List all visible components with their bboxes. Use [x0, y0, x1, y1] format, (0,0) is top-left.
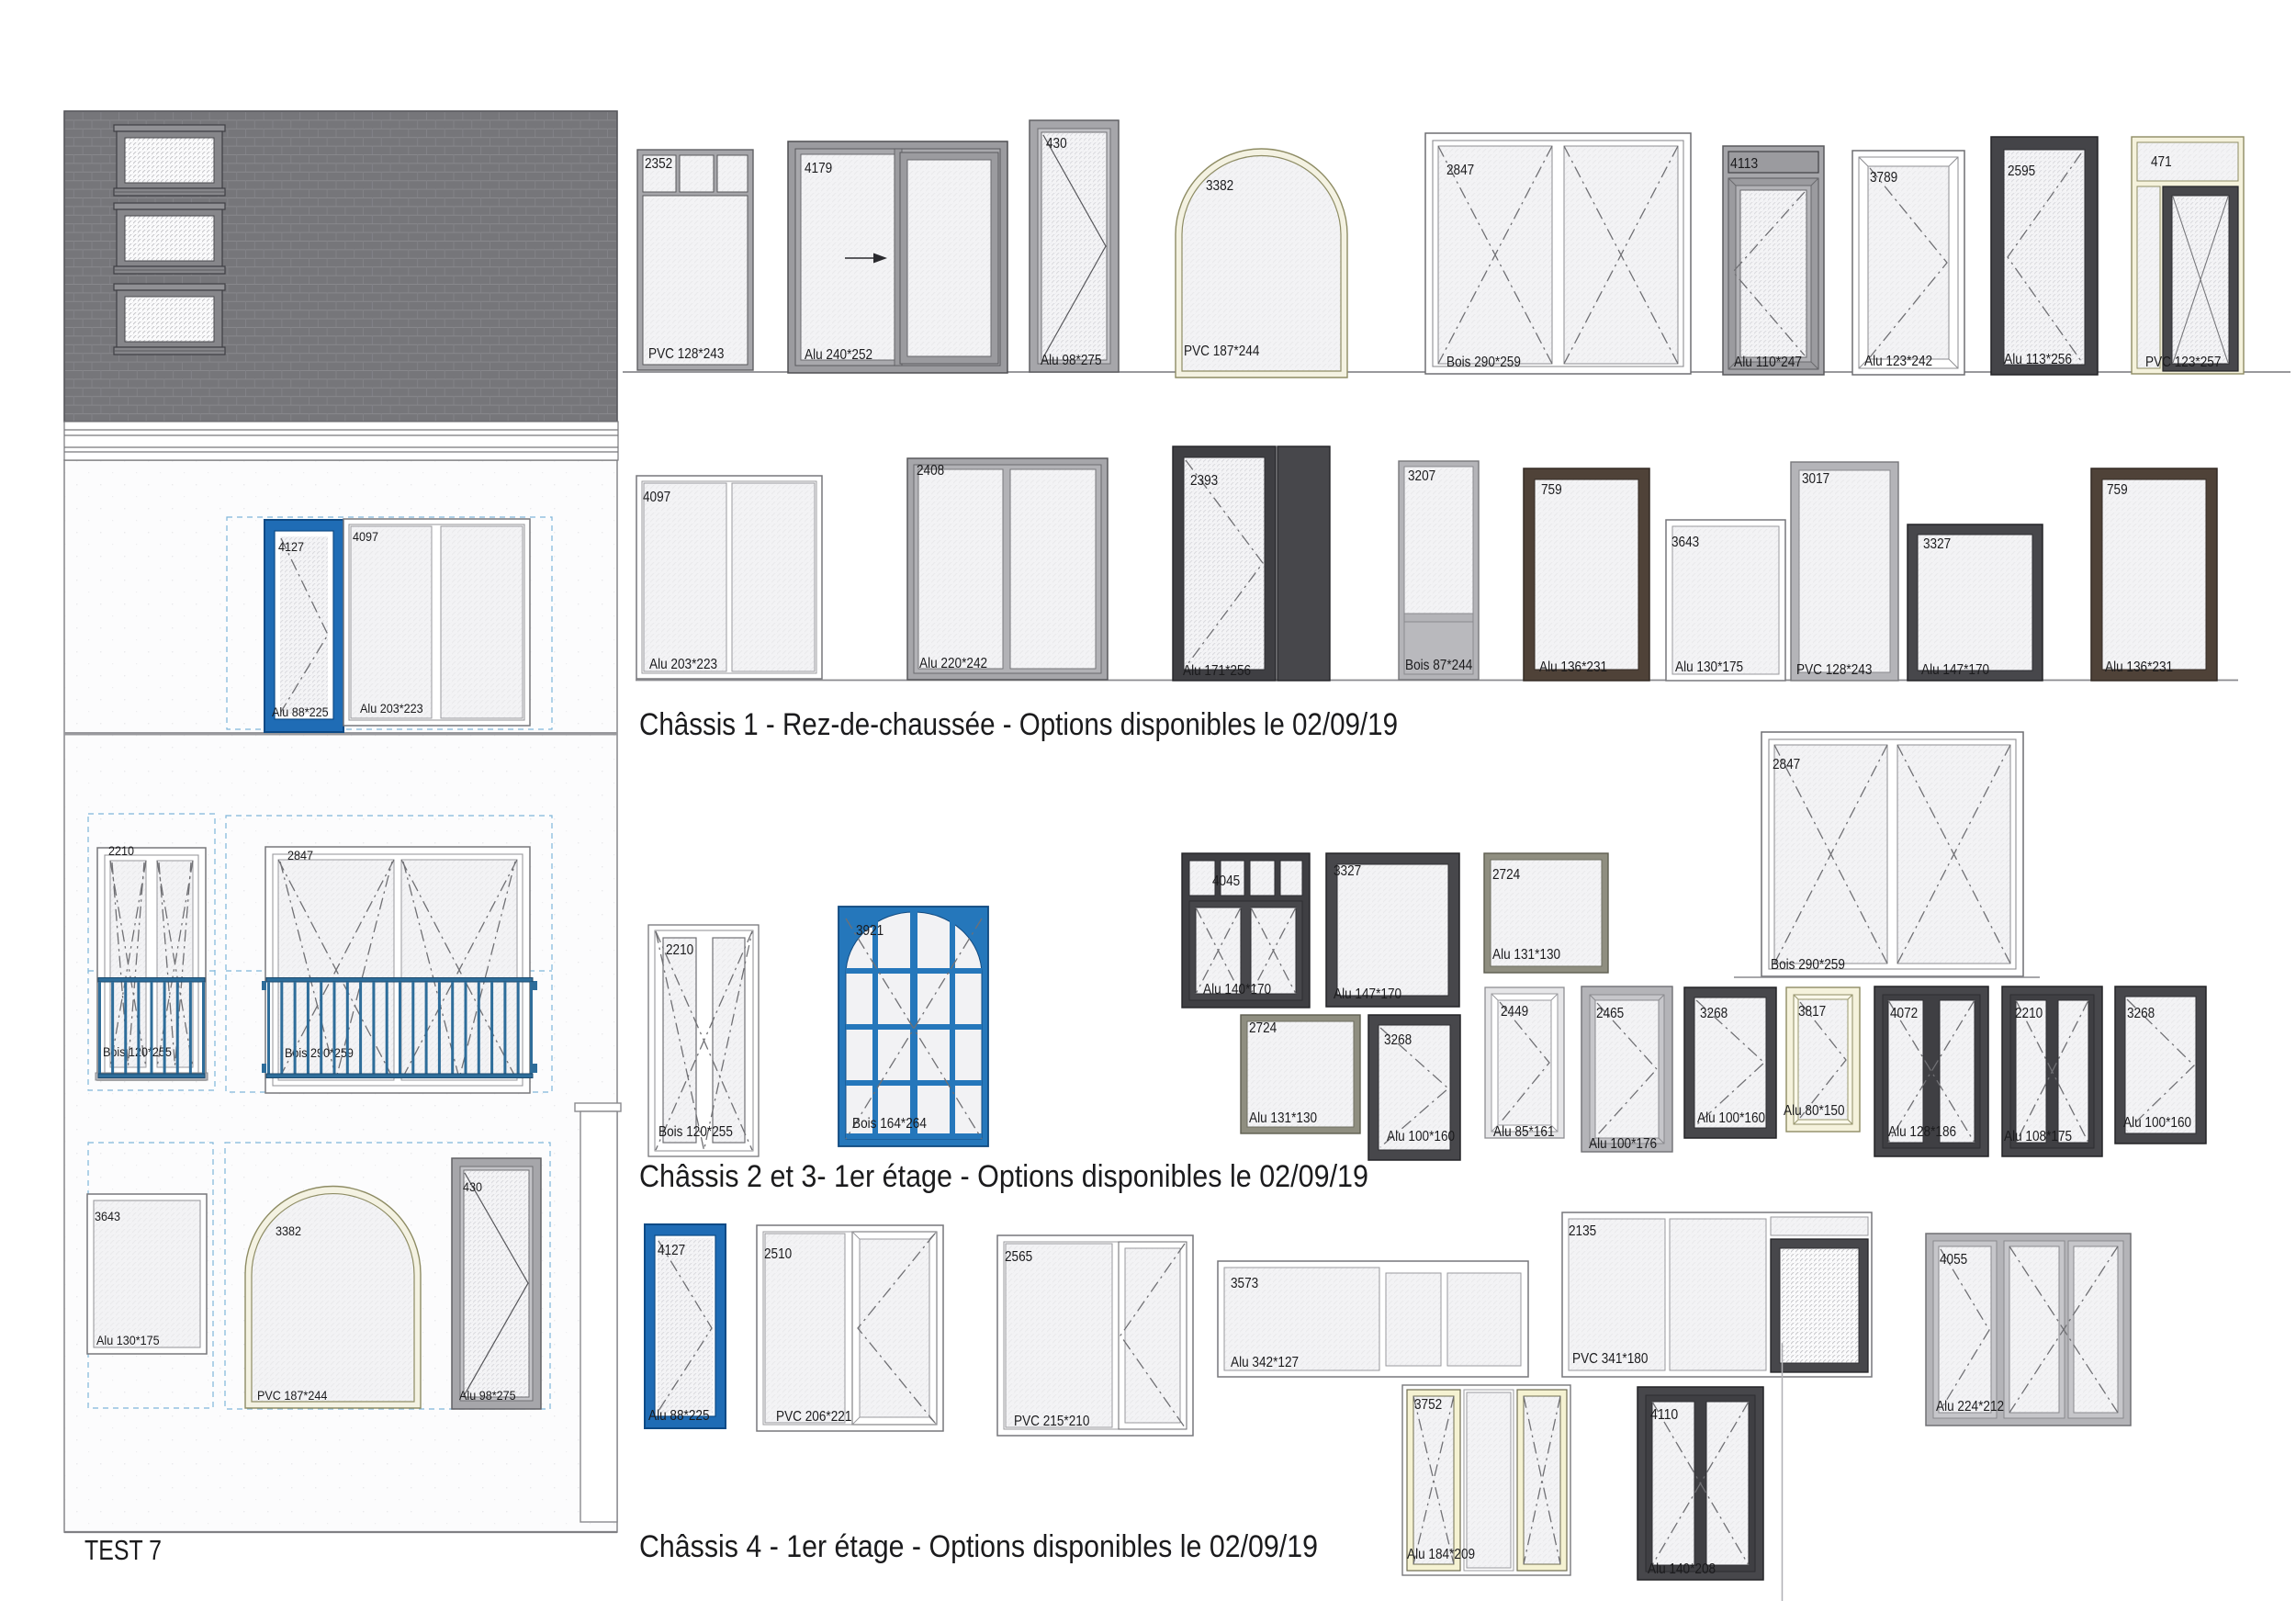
svg-text:2210: 2210: [666, 942, 693, 958]
svg-text:Alu 98*275: Alu 98*275: [1041, 353, 1102, 368]
svg-text:2393: 2393: [1190, 473, 1218, 489]
svg-text:Alu 108*175: Alu 108*175: [2004, 1129, 2072, 1144]
svg-text:Châssis 2 et 3- 1er étage - O: Châssis 2 et 3- 1er étage - Options disp…: [639, 1159, 1368, 1194]
svg-text:Alu 147*170: Alu 147*170: [1334, 986, 1401, 1002]
svg-text:430: 430: [463, 1179, 482, 1194]
svg-text:3573: 3573: [1231, 1276, 1258, 1291]
svg-text:Alu 110*247: Alu 110*247: [1734, 355, 1802, 370]
svg-text:Alu 184*209: Alu 184*209: [1407, 1547, 1475, 1562]
svg-text:4127: 4127: [658, 1243, 685, 1258]
svg-text:2595: 2595: [2008, 163, 2035, 179]
svg-text:2465: 2465: [1596, 1006, 1624, 1021]
svg-text:2135: 2135: [1569, 1223, 1596, 1239]
svg-text:4113: 4113: [1730, 156, 1758, 172]
svg-text:TEST 7: TEST 7: [84, 1534, 162, 1566]
svg-text:4072: 4072: [1890, 1006, 1918, 1021]
svg-text:4110: 4110: [1650, 1407, 1678, 1423]
svg-text:Alu 100*160: Alu 100*160: [2123, 1115, 2191, 1131]
svg-text:759: 759: [1541, 482, 1562, 498]
svg-text:3382: 3382: [1206, 178, 1233, 194]
svg-text:Alu 203*223: Alu 203*223: [649, 657, 717, 672]
svg-text:4179: 4179: [805, 161, 832, 176]
svg-text:PVC 187*244: PVC 187*244: [257, 1388, 328, 1403]
svg-text:4127: 4127: [278, 539, 304, 554]
svg-text:2210: 2210: [2015, 1006, 2043, 1021]
svg-text:2449: 2449: [1501, 1004, 1528, 1020]
svg-text:Alu 100*160: Alu 100*160: [1697, 1110, 1765, 1126]
svg-text:3921: 3921: [856, 923, 884, 939]
svg-text:430: 430: [1046, 136, 1067, 152]
svg-text:Châssis 1 - Rez-de-chaussée -: Châssis 1 - Rez-de-chaussée - Options di…: [639, 707, 1398, 742]
svg-text:Alu 147*170: Alu 147*170: [1921, 662, 1989, 678]
svg-text:Alu 240*252: Alu 240*252: [805, 347, 872, 363]
svg-text:Alu 88*225: Alu 88*225: [272, 704, 329, 719]
svg-text:Alu 80*150: Alu 80*150: [1784, 1103, 1845, 1119]
svg-text:2352: 2352: [645, 156, 672, 172]
svg-text:Alu 130*175: Alu 130*175: [96, 1333, 160, 1347]
svg-text:2565: 2565: [1005, 1249, 1032, 1265]
svg-text:Bois 87*244: Bois 87*244: [1405, 658, 1472, 673]
svg-text:Alu 342*127: Alu 342*127: [1231, 1355, 1299, 1370]
svg-text:3268: 3268: [2127, 1006, 2155, 1021]
svg-text:2210: 2210: [108, 843, 134, 858]
svg-text:4045: 4045: [1212, 873, 1240, 889]
svg-text:Alu 98*275: Alu 98*275: [459, 1388, 516, 1403]
svg-text:PVC 123*257: PVC 123*257: [2145, 355, 2221, 370]
svg-text:Alu 140*208: Alu 140*208: [1648, 1561, 1716, 1577]
svg-text:3207: 3207: [1408, 468, 1435, 484]
svg-text:PVC 128*243: PVC 128*243: [648, 346, 724, 362]
svg-text:2724: 2724: [1249, 1020, 1277, 1036]
svg-text:3752: 3752: [1414, 1397, 1442, 1413]
svg-text:471: 471: [2151, 154, 2172, 170]
svg-text:Alu 171*256: Alu 171*256: [1183, 663, 1251, 679]
svg-text:Alu 85*161: Alu 85*161: [1493, 1124, 1555, 1140]
svg-text:Alu 224*212: Alu 224*212: [1936, 1399, 2004, 1414]
svg-text:3382: 3382: [276, 1223, 301, 1238]
svg-text:759: 759: [2107, 482, 2128, 498]
svg-text:Alu 88*225: Alu 88*225: [648, 1408, 710, 1424]
svg-text:Alu 113*256: Alu 113*256: [2004, 352, 2072, 367]
svg-text:Bois 164*264: Bois 164*264: [852, 1116, 927, 1132]
svg-text:PVC 341*180: PVC 341*180: [1572, 1351, 1648, 1367]
svg-text:Alu 130*175: Alu 130*175: [1675, 659, 1743, 675]
svg-text:2847: 2847: [1773, 757, 1800, 772]
svg-text:3817: 3817: [1798, 1004, 1826, 1020]
svg-text:3327: 3327: [1923, 536, 1951, 552]
svg-text:3789: 3789: [1870, 170, 1897, 186]
svg-text:PVC 215*210: PVC 215*210: [1014, 1414, 1089, 1429]
svg-text:Alu 100*160: Alu 100*160: [1387, 1129, 1455, 1144]
svg-text:3268: 3268: [1700, 1006, 1728, 1021]
svg-text:2847: 2847: [1446, 163, 1474, 178]
svg-text:Châssis 4 - 1er étage - Optio: Châssis 4 - 1er étage - Options disponib…: [639, 1529, 1318, 1564]
svg-text:Bois 290*259: Bois 290*259: [1771, 957, 1845, 973]
svg-text:Alu 131*130: Alu 131*130: [1492, 947, 1560, 963]
svg-text:3327: 3327: [1334, 863, 1361, 879]
svg-text:PVC 128*243: PVC 128*243: [1796, 662, 1872, 678]
svg-text:PVC 206*221: PVC 206*221: [776, 1409, 851, 1425]
svg-text:3017: 3017: [1802, 471, 1829, 487]
svg-text:Alu 220*242: Alu 220*242: [919, 656, 987, 671]
svg-text:Alu 203*223: Alu 203*223: [360, 701, 423, 716]
svg-text:PVC 187*244: PVC 187*244: [1184, 344, 1259, 359]
svg-text:2408: 2408: [917, 463, 944, 479]
svg-text:Alu 128*186: Alu 128*186: [1888, 1124, 1956, 1140]
svg-text:Alu 123*242: Alu 123*242: [1864, 354, 1932, 369]
svg-text:3268: 3268: [1384, 1032, 1412, 1048]
svg-text:4097: 4097: [353, 529, 378, 544]
svg-text:Alu 136*231: Alu 136*231: [1539, 659, 1607, 675]
svg-text:Alu 100*176: Alu 100*176: [1589, 1136, 1657, 1152]
svg-text:Alu 136*231: Alu 136*231: [2105, 659, 2173, 675]
svg-text:Bois 120*255: Bois 120*255: [658, 1124, 733, 1140]
svg-text:Alu 131*130: Alu 131*130: [1249, 1110, 1317, 1126]
svg-text:3643: 3643: [95, 1209, 120, 1223]
svg-text:3643: 3643: [1671, 535, 1699, 550]
svg-text:Bois 290*259: Bois 290*259: [1446, 355, 1521, 370]
svg-text:2847: 2847: [287, 848, 313, 862]
svg-text:2724: 2724: [1492, 867, 1520, 883]
svg-text:Alu 140*170: Alu 140*170: [1203, 982, 1271, 997]
svg-text:4055: 4055: [1940, 1252, 1967, 1268]
svg-text:4097: 4097: [643, 490, 670, 505]
svg-text:2510: 2510: [764, 1246, 792, 1262]
